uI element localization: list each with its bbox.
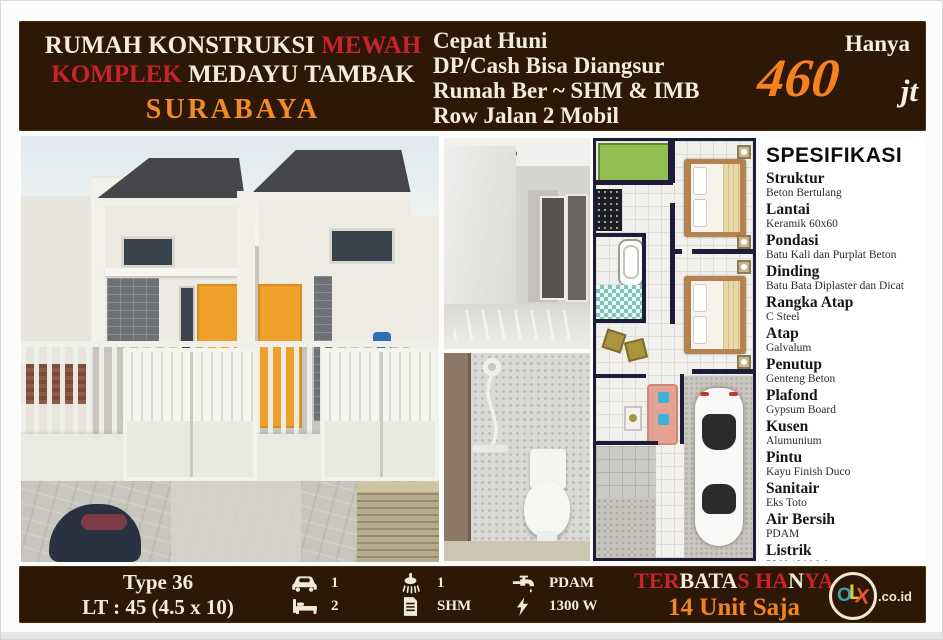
house-b-upper-window (329, 228, 395, 264)
header-line1-part1: RUMAH KONSTRUKSI (45, 32, 321, 59)
header-bar: RUMAH KONSTRUKSI MEWAH KOMPLEK MEDAYU TA… (19, 21, 926, 131)
bathroom-photo (444, 353, 590, 561)
header-selling-points: Cepat Huni DP/Cash Bisa Diangsur Rumah B… (433, 28, 699, 128)
wall (670, 203, 675, 251)
interior-photo (444, 138, 590, 349)
wall (596, 441, 658, 445)
feature-certificate: SHM (397, 597, 509, 616)
spec-item: StrukturBeton Bertulang (766, 171, 926, 199)
wall (596, 319, 646, 323)
nightstand (737, 260, 751, 274)
left-wall (444, 146, 516, 314)
pillow (693, 284, 707, 312)
house-type: Type 36 (33, 570, 283, 595)
olx-letter-x: X (853, 584, 870, 610)
house-a-upper-window (121, 236, 175, 268)
type-block: Type 36 LT : 45 (4.5 x 10) (33, 570, 283, 620)
garden-area (598, 143, 672, 182)
fence-top-rail (21, 341, 439, 347)
dining-chair (624, 338, 648, 362)
document-icon (397, 597, 424, 616)
wall (596, 233, 646, 237)
shower-mixer (472, 445, 508, 452)
house-a-canopy (105, 268, 243, 276)
street-area (596, 498, 656, 558)
feature-bedroom: 2 (291, 598, 397, 615)
bathroom-tile-floor (596, 285, 644, 319)
main-house-photo (21, 136, 439, 562)
spec-item: PondasiBatu Kali dan Purplat Beton (766, 233, 926, 261)
olx-logo: O L X .co.id (829, 572, 912, 620)
olx-domain-suffix: .co.id (878, 589, 912, 604)
motorcycle-seat (81, 514, 127, 530)
tile-stack-top (357, 482, 439, 492)
spec-item: AtapGalvalum (766, 326, 926, 354)
feature-electricity: 1300 W (509, 597, 621, 616)
feature-value: 1 (331, 575, 339, 592)
wall (596, 374, 646, 378)
bolt-icon (509, 597, 536, 616)
sofa-pillow (658, 414, 669, 425)
pillow (693, 167, 707, 195)
selling-point: Rumah Ber ~ SHM & IMB (433, 78, 699, 103)
specifications-title: SPESIFIKASI (766, 144, 926, 168)
header-line2-part2: MEDAYU TAMBAK (188, 61, 415, 88)
terrace-tiles (596, 446, 656, 498)
pillow (693, 316, 707, 344)
spec-item: KusenAlumunium (766, 419, 926, 447)
bed-bedroom-2 (684, 276, 746, 354)
bathroom-floor (444, 541, 590, 561)
header-title-block: RUMAH KONSTRUKSI MEWAH KOMPLEK MEDAYU TA… (33, 31, 433, 126)
wall (596, 180, 672, 185)
price-amount: 460 (755, 47, 843, 109)
feature-value: 2 (331, 598, 339, 615)
header-line2: KOMPLEK MEDAYU TAMBAK (33, 60, 433, 89)
gate-split (380, 352, 383, 477)
limited-offer-line1: TERBATAS HANYA (617, 567, 851, 594)
spec-item: SanitairEks Toto (766, 481, 926, 509)
wall (670, 254, 675, 324)
walkway (171, 481, 301, 562)
kitchen-counter (596, 189, 622, 231)
header-city: SURABAYA (33, 94, 433, 126)
house-a-stone-accent (107, 278, 159, 342)
selling-point: DP/Cash Bisa Diangsur (433, 53, 699, 78)
header-line1-part2: MEWAH (321, 32, 421, 59)
feature-carport: 1 (291, 575, 397, 592)
dining-chair (601, 328, 626, 353)
gate-house-a (123, 348, 257, 481)
gate-split (190, 352, 193, 477)
feature-value: PDAM (549, 575, 594, 592)
header-line2-part1: KOMPLEK (51, 61, 188, 88)
land-size: LT : 45 (4.5 x 10) (33, 595, 283, 620)
limited-offer-block: TERBATAS HANYA 14 Unit Saja (617, 567, 851, 621)
table-ornament (629, 414, 637, 422)
wall (670, 141, 675, 183)
feature-value: SHM (437, 598, 471, 615)
header-line1: RUMAH KONSTRUKSI MEWAH (33, 31, 433, 60)
wall (642, 233, 646, 323)
floor-plan (593, 138, 756, 561)
sofa-pillow (658, 392, 669, 403)
house-b-fascia (251, 192, 411, 201)
car-taillight (729, 392, 738, 396)
spec-item: Rangka AtapC Steel (766, 295, 926, 323)
faucet-icon (509, 574, 536, 593)
wall (692, 369, 753, 374)
footer-bar: Type 36 LT : 45 (4.5 x 10) 1 1 PDAM (19, 566, 926, 623)
feature-water: PDAM (509, 574, 621, 593)
door-opening-1 (540, 196, 566, 300)
selling-point: Row Jalan 2 Mobil (433, 103, 699, 128)
bathtub-inner (623, 245, 639, 279)
price-prefix: Hanya (845, 31, 910, 57)
flyer-canvas: RUMAH KONSTRUKSI MEWAH KOMPLEK MEDAYU TA… (0, 0, 943, 640)
spec-item: Air BersihPDAM (766, 512, 926, 540)
lamp (741, 264, 747, 270)
shower-icon (397, 573, 424, 594)
spec-item: PlafondGypsum Board (766, 388, 926, 416)
lamp (741, 359, 747, 365)
nightstand (737, 145, 751, 159)
specifications-panel: SPESIFIKASI StrukturBeton Bertulang Lant… (761, 138, 926, 561)
feature-bathroom: 1 (397, 573, 509, 594)
car-taillight (700, 392, 709, 396)
coffee-table (624, 406, 642, 431)
limited-offer-line2: 14 Unit Saja (617, 594, 851, 621)
spec-item: PintuKayu Finish Duco (766, 450, 926, 478)
floor-reflection (454, 310, 574, 340)
parked-car (695, 388, 743, 546)
car-rear-window (702, 414, 736, 450)
price-block: Hanya 460 jt (754, 25, 943, 129)
olx-logo-circle: O L X (829, 572, 877, 620)
feature-grid: 1 1 PDAM 2 (291, 572, 621, 618)
price-unit: jt (901, 73, 918, 109)
spec-item: ListrikPLN 1300 Watt (766, 543, 926, 561)
tile-stack (357, 488, 439, 562)
bottom-margin-strip (1, 632, 943, 640)
bedroom-divider-wall (692, 249, 753, 254)
bed-icon (291, 598, 318, 615)
pillow (693, 199, 707, 227)
bed-bedroom-1 (684, 159, 746, 237)
nightstand (737, 355, 751, 369)
sofa (647, 384, 678, 445)
spec-item: DindingBatu Bata Diplaster dan Dicat (766, 264, 926, 292)
blanket (723, 281, 740, 349)
blanket (723, 164, 740, 232)
gate-house-b (321, 348, 439, 481)
lamp (741, 239, 747, 245)
feature-value: 1 (437, 575, 445, 592)
feature-value: 1300 W (549, 598, 597, 615)
car-icon (291, 575, 318, 592)
spec-item: LantaiKeramik 60x60 (766, 202, 926, 230)
nightstand (737, 235, 751, 249)
spec-item: PenutupGenteng Beton (766, 357, 926, 385)
lamp (741, 149, 747, 155)
door-opening-2 (566, 194, 588, 302)
toilet-bowl (524, 481, 570, 537)
selling-point: Cepat Huni (433, 28, 699, 53)
car-windshield (702, 484, 736, 514)
